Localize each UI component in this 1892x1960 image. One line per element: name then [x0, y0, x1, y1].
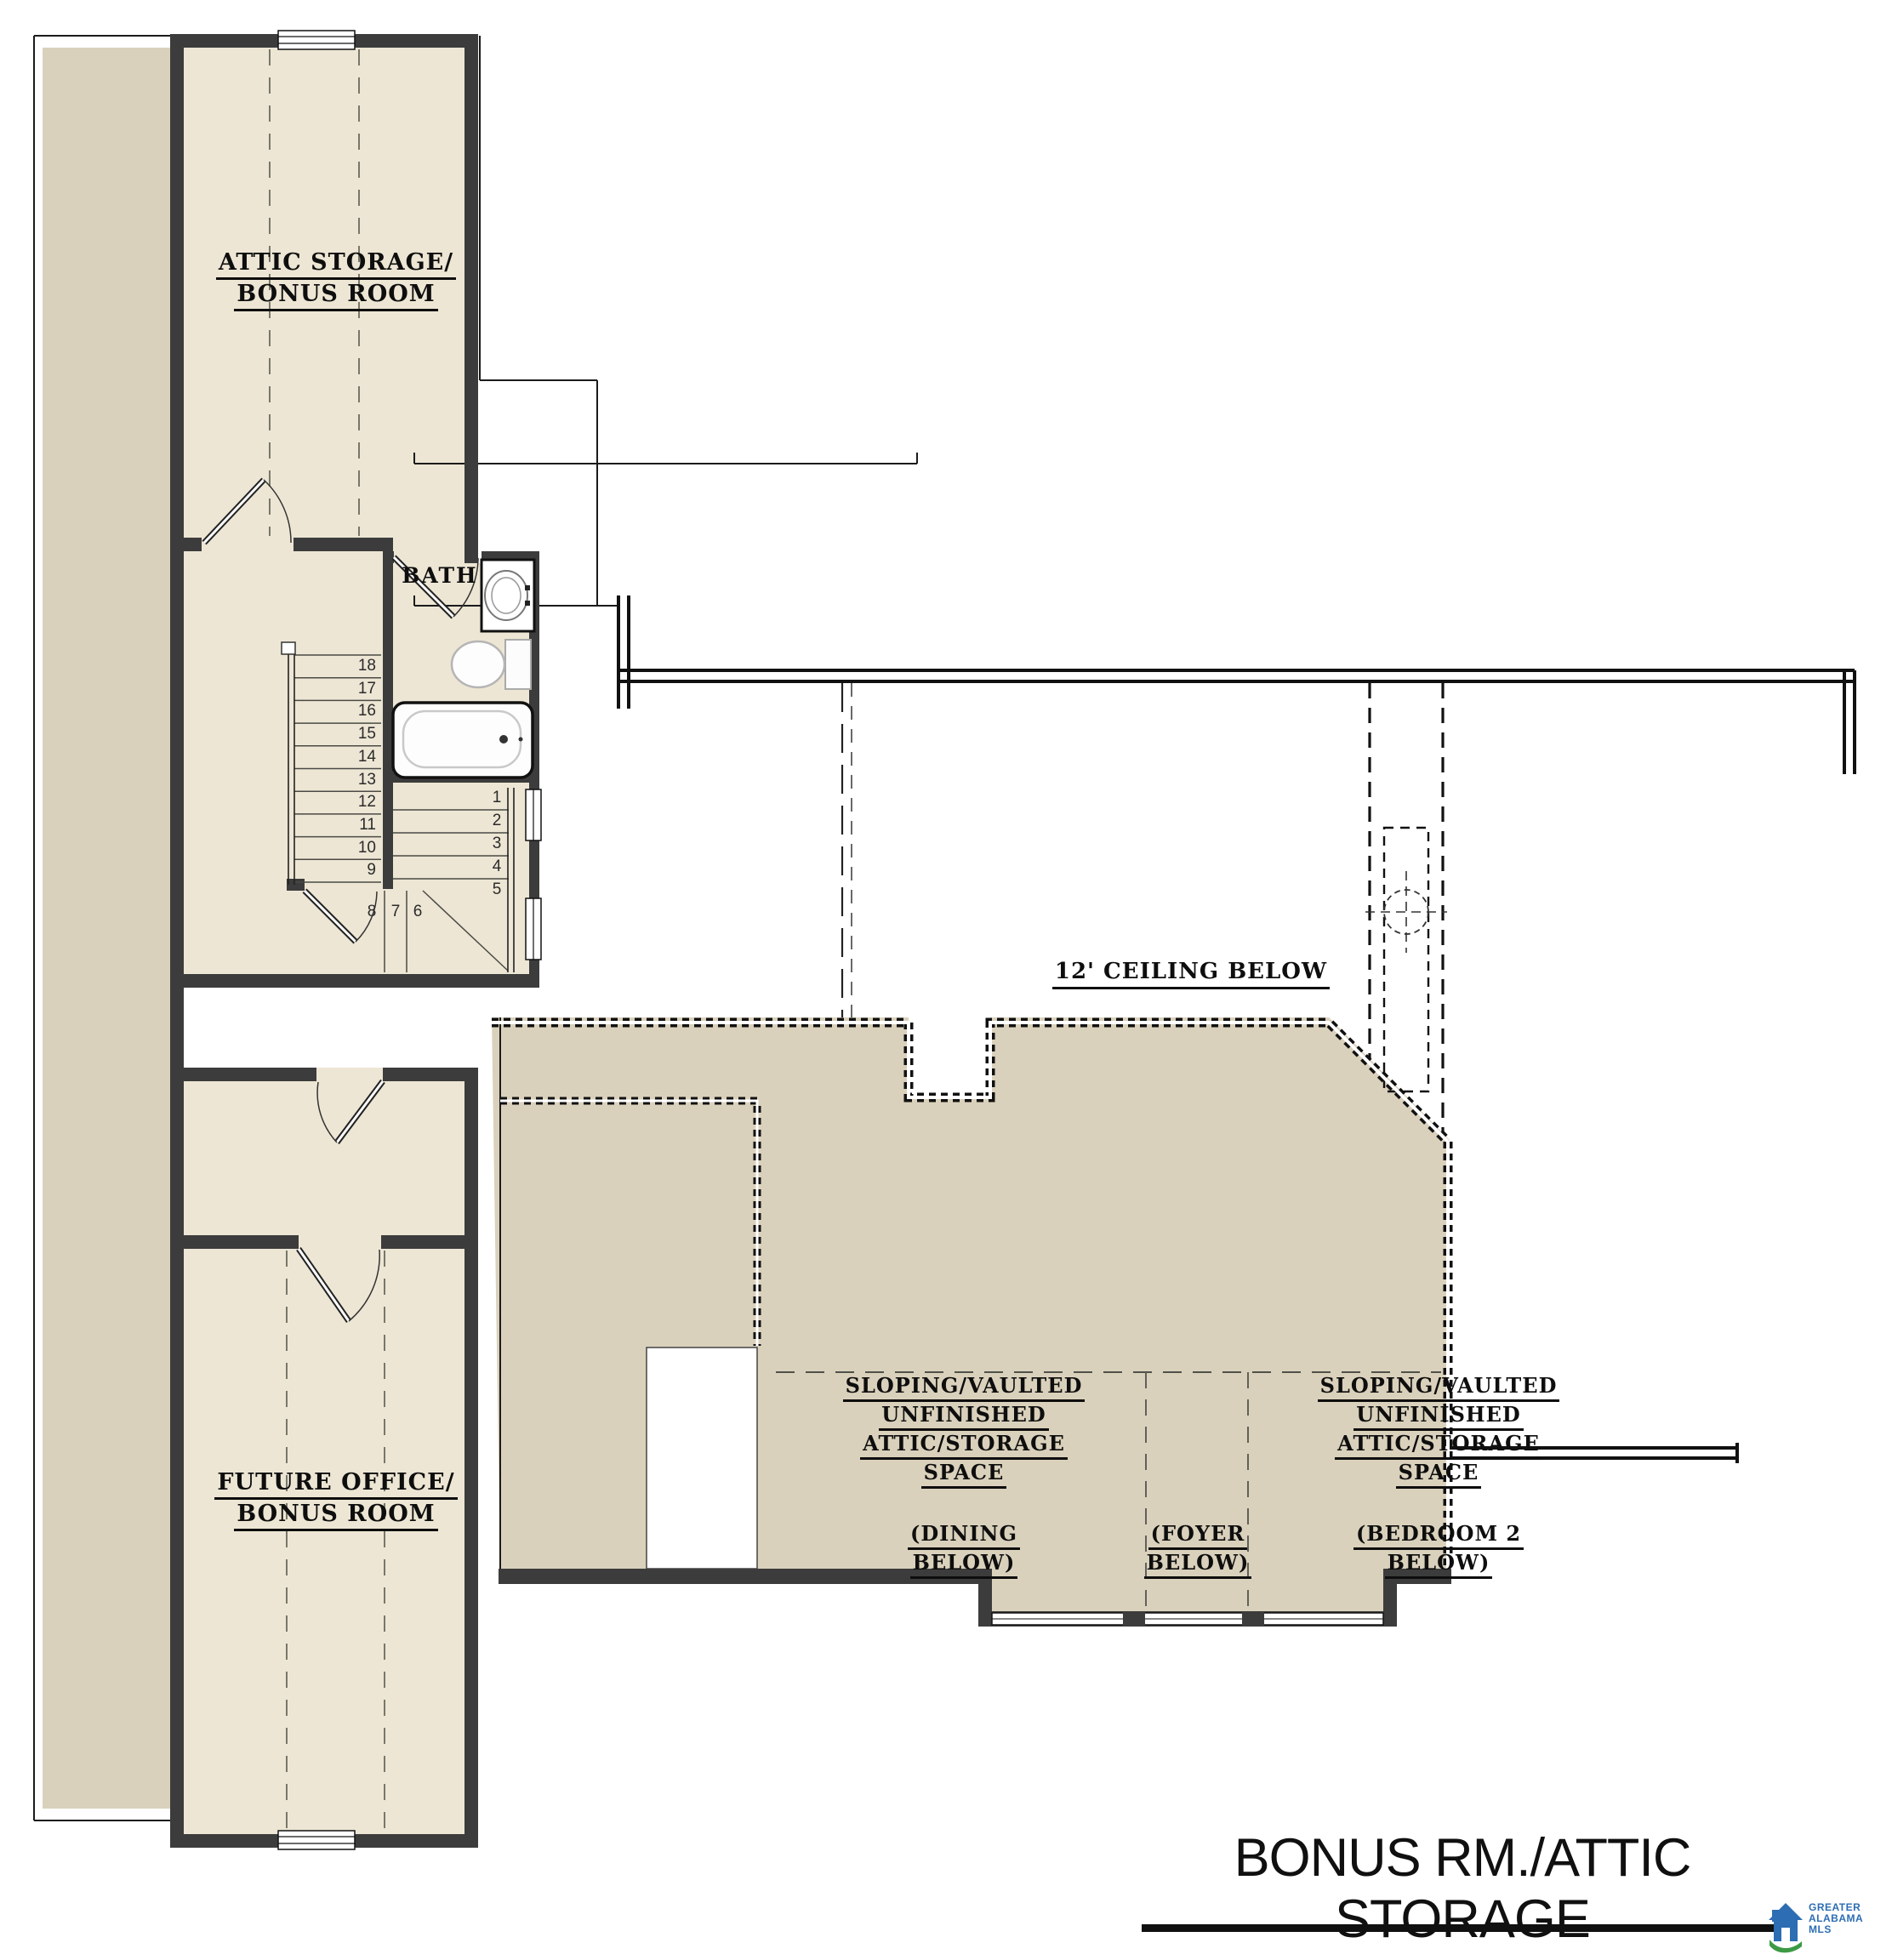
label-ceiling-below: 12' CEILING BELOW — [1012, 958, 1370, 989]
floorplan-page: ATTIC STORAGE/ BONUS ROOM BATH 12' CEILI… — [0, 0, 1892, 1960]
toilet-tank — [505, 640, 531, 689]
toilet-bowl — [452, 641, 504, 687]
stair-tread-number: 11 — [347, 816, 376, 835]
stair-tread-number: 2 — [485, 812, 509, 830]
room-label-bath: BATH — [393, 561, 487, 590]
stair-tread-number: 15 — [347, 725, 376, 744]
stair-tread-number: 5 — [485, 880, 509, 899]
sheet-title-underline — [1142, 1924, 1790, 1932]
side-roof-strip — [43, 48, 172, 1809]
stair-tread-number: 17 — [347, 680, 376, 698]
label-attic-bedroom: SLOPING/VAULTED UNFINISHED ATTIC/STORAGE… — [1311, 1373, 1566, 1489]
stair-tread-number: 18 — [347, 657, 376, 675]
stair-tread-number: 8 — [360, 903, 384, 921]
open-below-notch — [647, 1347, 757, 1569]
stair-tread-number: 12 — [347, 793, 376, 812]
stair-tread-number: 9 — [347, 861, 376, 880]
stair-tread-number: 14 — [347, 748, 376, 766]
mls-logo-text: GREATER ALABAMA MLS — [1809, 1902, 1863, 1935]
stair-tread-number: 1 — [485, 789, 509, 807]
mls-house-icon — [1766, 1902, 1805, 1955]
stair-tread-number: 6 — [406, 903, 430, 921]
mls-logo: GREATER ALABAMA MLS — [1766, 1902, 1863, 1955]
stair-tread-number: 7 — [384, 903, 407, 921]
room-label-attic-storage: ATTIC STORAGE/ BONUS ROOM — [183, 248, 489, 311]
label-dining-below: (DINING BELOW) — [836, 1521, 1091, 1579]
label-bedroom2-below: (BEDROOM 2 BELOW) — [1311, 1521, 1566, 1579]
label-foyer-below: (FOYER BELOW) — [1134, 1521, 1262, 1579]
stair-tread-number: 10 — [347, 839, 376, 857]
label-attic-dining: SLOPING/VAULTED UNFINISHED ATTIC/STORAGE… — [836, 1373, 1091, 1489]
ceiling-below-boundary — [618, 595, 1855, 774]
stair-tread-number: 4 — [485, 857, 509, 876]
stair-tread-number: 16 — [347, 702, 376, 721]
stair-tread-number: 3 — [485, 835, 509, 853]
room-label-future-office: FUTURE OFFICE/ BONUS ROOM — [183, 1468, 489, 1531]
stair-tread-number: 13 — [347, 771, 376, 789]
open-below-band — [182, 988, 464, 1068]
